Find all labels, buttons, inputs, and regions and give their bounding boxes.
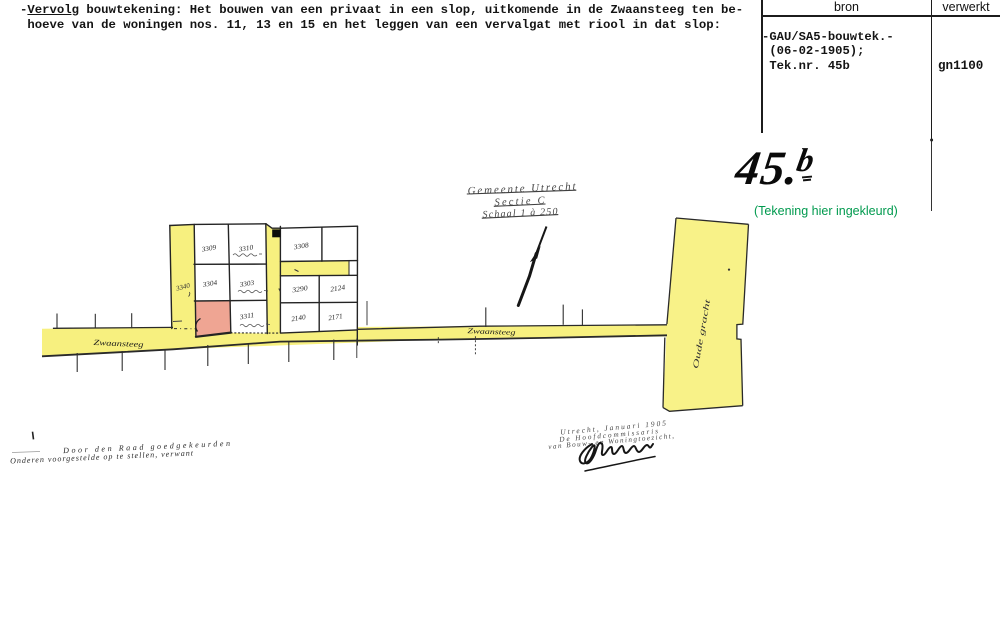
svg-text:Zwaansteeg: Zwaansteeg: [467, 326, 516, 337]
svg-text:Gemeente Utrecht: Gemeente Utrecht: [467, 181, 576, 198]
svg-text:Schaal 1 à 250: Schaal 1 à 250: [482, 206, 557, 220]
